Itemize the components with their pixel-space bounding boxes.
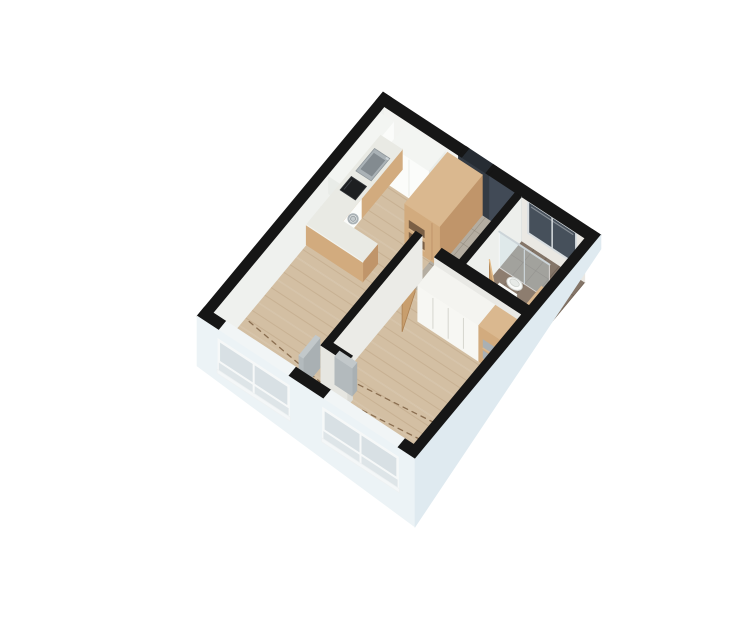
floor-plan-render [0, 0, 739, 630]
floor-plan-stage [0, 0, 739, 630]
